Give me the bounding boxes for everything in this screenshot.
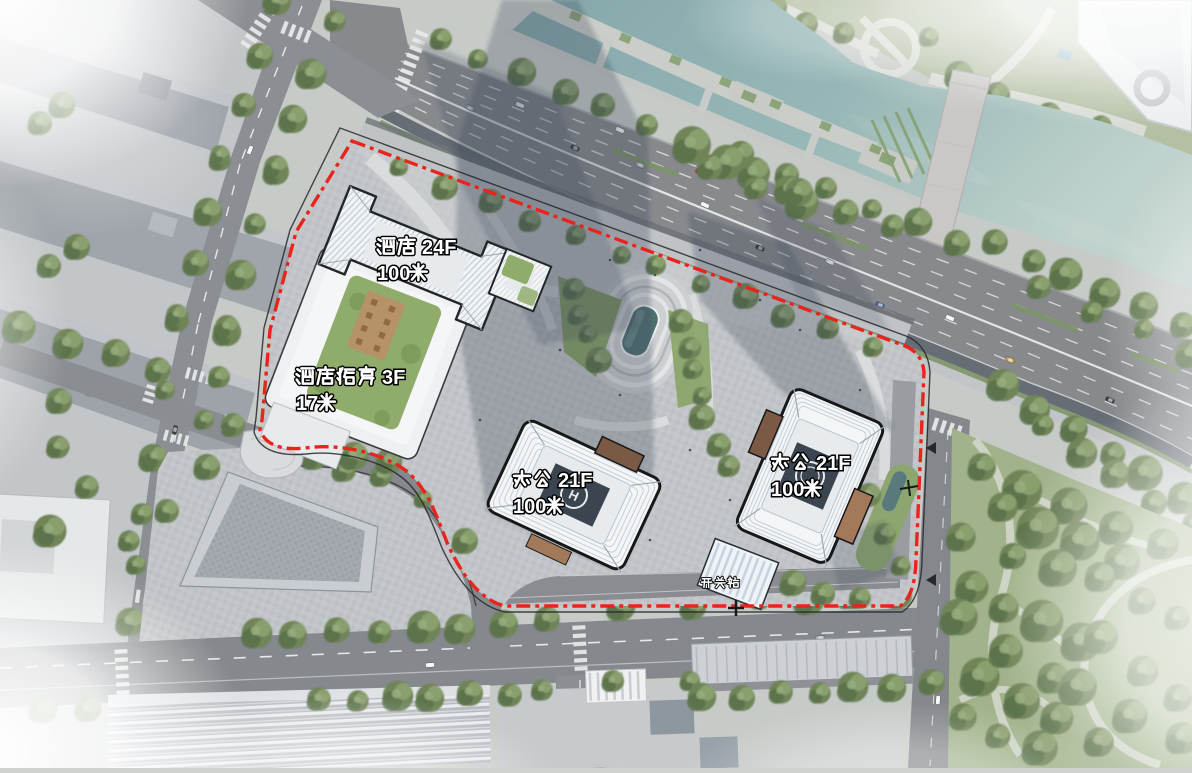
svg-text:100: 100 <box>771 479 804 501</box>
svg-text:17: 17 <box>296 393 318 415</box>
svg-text:3F: 3F <box>382 367 405 389</box>
svg-text:100: 100 <box>377 263 410 285</box>
svg-text:24F: 24F <box>422 237 456 259</box>
svg-text:21F: 21F <box>558 470 592 492</box>
svg-text:21F: 21F <box>816 453 850 475</box>
svg-text:100: 100 <box>513 496 546 518</box>
